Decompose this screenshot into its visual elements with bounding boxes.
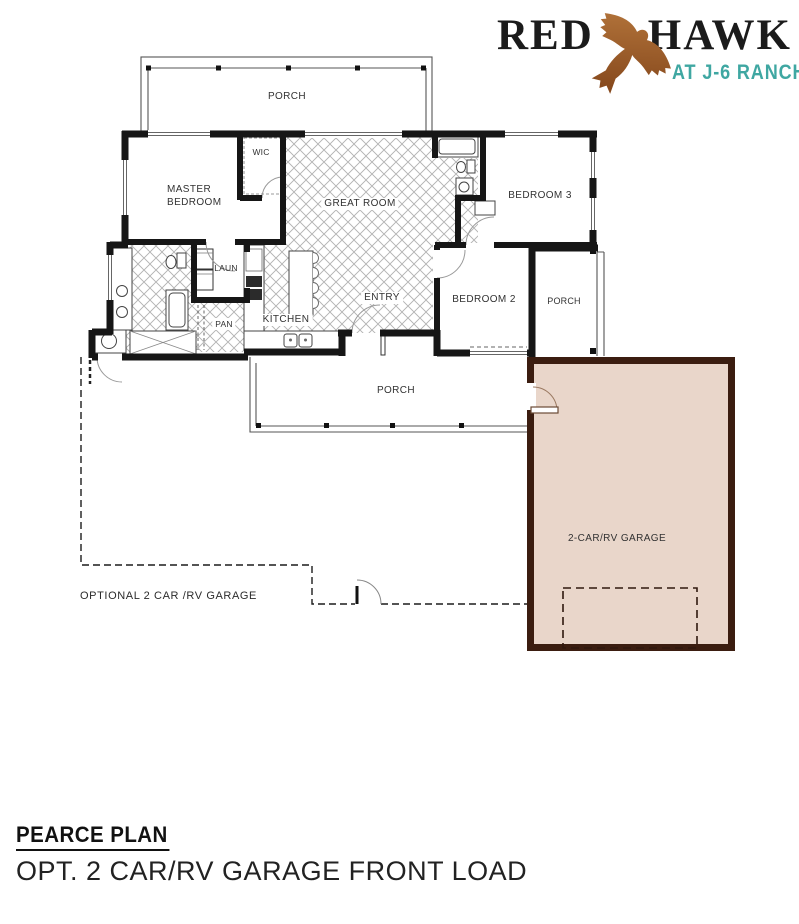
room-label-pantry: PAN	[212, 318, 235, 330]
room-label-great-room: GREAT ROOM	[321, 198, 398, 210]
master-shower	[130, 331, 196, 354]
optional-garage-outline	[81, 357, 527, 604]
right-porch	[597, 252, 604, 356]
kitchen-island	[289, 251, 319, 315]
room-label-entry: ENTRY	[361, 292, 403, 304]
front-door-leaf	[381, 334, 385, 355]
floor-plan: PORCH WIC MASTER BEDROOM GREAT ROOM BEDR…	[0, 0, 799, 740]
plan-name: PEARCE PLAN	[16, 822, 170, 851]
room-label-bedroom-2: BEDROOM 2	[452, 294, 516, 306]
room-label-porch-right: PORCH	[547, 295, 581, 307]
room-label-wic: WIC	[252, 146, 269, 158]
washer-dryer	[196, 249, 213, 290]
room-label-bedroom-3: BEDROOM 3	[508, 190, 572, 202]
room-label-optional-garage: OPTIONAL 2 CAR /RV GARAGE	[80, 590, 257, 602]
right-porch-posts	[590, 248, 596, 354]
room-label-master-bedroom: MASTER BEDROOM	[167, 183, 241, 209]
garage	[524, 361, 732, 649]
floor-plan-svg	[0, 0, 799, 740]
room-label-garage: 2-CAR/RV GARAGE	[568, 533, 666, 545]
room-label-kitchen: KITCHEN	[260, 314, 313, 326]
garage-entry-door-leaf	[531, 407, 558, 413]
plan-option: OPT. 2 CAR/RV GARAGE FRONT LOAD	[16, 856, 527, 887]
room-label-porch-bottom: PORCH	[377, 385, 415, 397]
floor-plan-page: RED HAWK AT J-6 RANCH	[0, 0, 799, 924]
room-label-porch-top: PORCH	[268, 91, 306, 103]
room-label-laundry: LAUN	[214, 262, 237, 274]
footer: PEARCE PLAN OPT. 2 CAR/RV GARAGE FRONT L…	[16, 822, 527, 887]
